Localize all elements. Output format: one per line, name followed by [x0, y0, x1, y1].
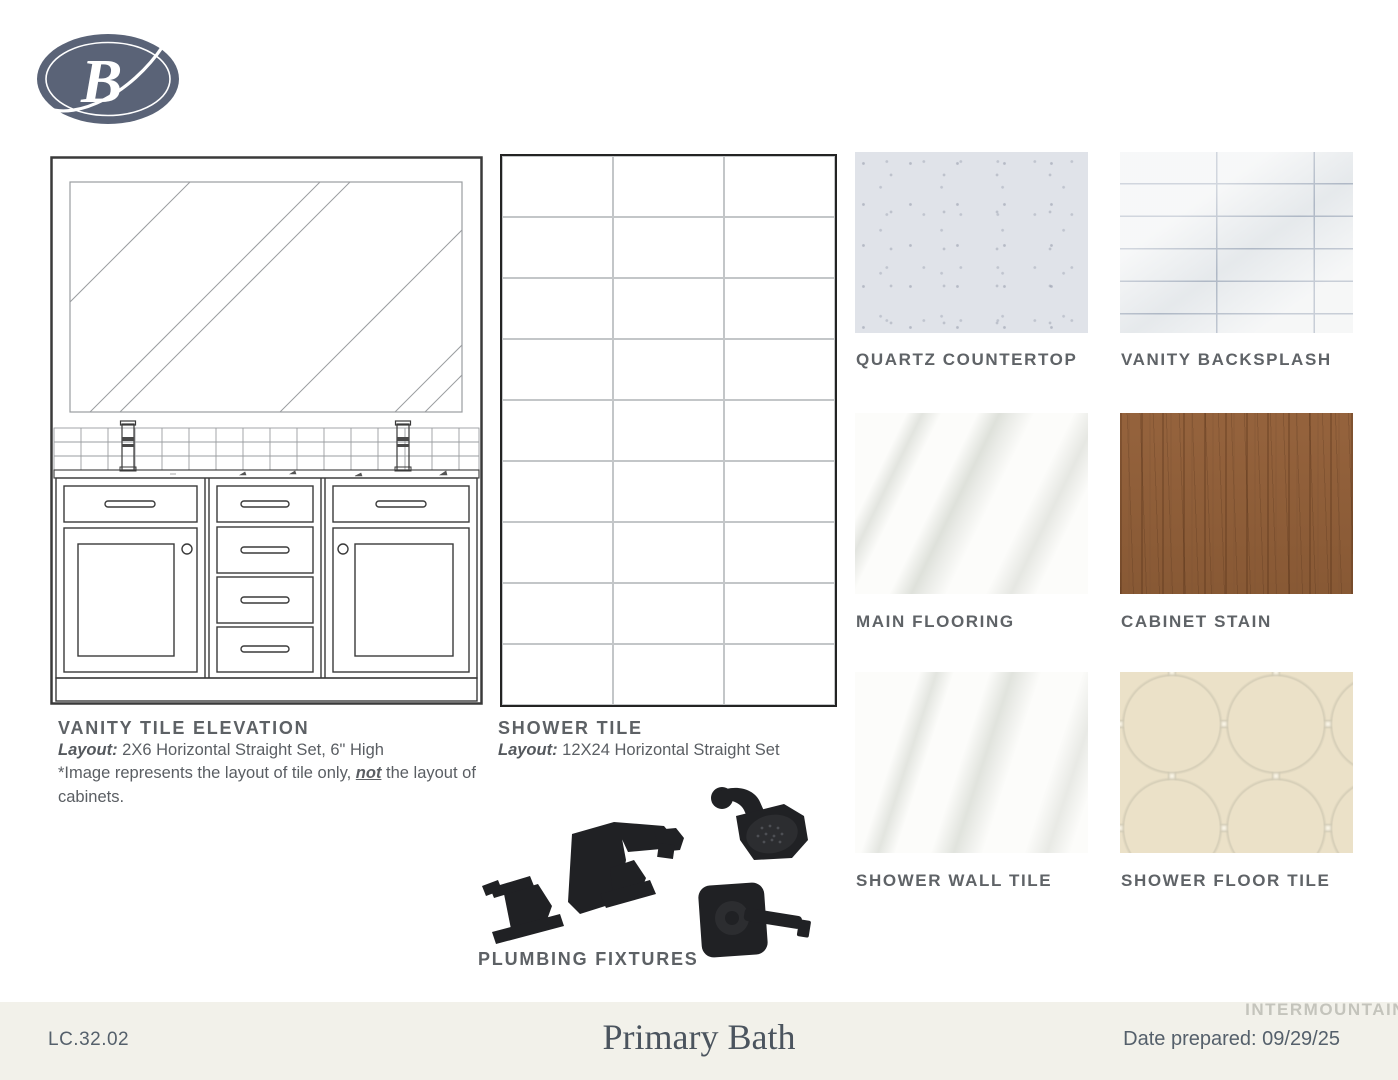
shower-tile-cell — [502, 583, 613, 644]
footer-bar: INTERMOUNTAIN LC.32.02 Primary Bath Date… — [0, 1002, 1398, 1080]
shower-tile-cell — [613, 217, 724, 278]
shower-tile-cell — [502, 217, 613, 278]
brand-logo: B — [35, 32, 181, 126]
shower-tile-cell — [613, 156, 724, 217]
vanity-layout-value: 2X6 Horizontal Straight Set, 6" High — [118, 741, 384, 759]
shower-tile-cell — [724, 156, 835, 217]
label-main-flooring: MAIN FLOORING — [856, 612, 1015, 632]
backsplash-tile-band — [54, 428, 479, 470]
shower-tile-cell — [502, 156, 613, 217]
label-cabinet-stain: CABINET STAIN — [1121, 612, 1272, 632]
swatch-shower-floor-tile — [1120, 672, 1353, 853]
cabinet-right-door — [333, 486, 469, 672]
cabinet-left-door — [64, 486, 197, 672]
plumbing-fixtures-art — [468, 782, 840, 960]
swatch-cabinet-stain — [1120, 413, 1353, 594]
mirror — [50, 162, 483, 412]
shower-tile-cell — [613, 400, 724, 461]
shower-tile-cell — [613, 583, 724, 644]
swatch-quartz-countertop — [855, 152, 1088, 333]
toe-kick — [56, 678, 477, 701]
shower-tile-cell — [502, 278, 613, 339]
shower-tile-cell — [502, 400, 613, 461]
shower-layout-label: Layout: — [498, 741, 558, 759]
countertop — [54, 470, 479, 478]
shower-tile-cell — [724, 339, 835, 400]
date-prepared-value: 09/29/25 — [1257, 1028, 1340, 1050]
vanity-caption: VANITY TILE ELEVATION Layout: 2X6 Horizo… — [58, 718, 478, 809]
vanity-note-bold: not — [356, 764, 382, 782]
shower-valve-icon — [698, 882, 812, 958]
faucet-spout-icon — [568, 822, 684, 914]
shower-caption: SHOWER TILE Layout: 12X24 Horizontal Str… — [498, 718, 848, 762]
shower-tile-cell — [724, 400, 835, 461]
shower-tile-cell — [613, 644, 724, 705]
design-board: B — [0, 0, 1398, 1080]
logo-letter: B — [80, 48, 122, 116]
shower-layout-value: 12X24 Horizontal Straight Set — [558, 741, 780, 759]
label-shower-floor-tile: SHOWER FLOOR TILE — [1121, 871, 1330, 891]
plumbing-fixtures-label: PLUMBING FIXTURES — [478, 949, 699, 970]
shower-tile-grid — [500, 154, 837, 707]
faucet-left — [120, 421, 136, 471]
swatch-shower-wall-tile — [855, 672, 1088, 853]
shower-tile-cell — [502, 461, 613, 522]
swatch-main-flooring — [855, 413, 1088, 594]
shower-tile-cell — [724, 583, 835, 644]
shower-head-icon — [711, 787, 808, 860]
vanity-layout-line: Layout: 2X6 Horizontal Straight Set, 6" … — [58, 739, 478, 762]
shower-tile-cell — [613, 522, 724, 583]
vanity-elevation-drawing — [50, 156, 483, 705]
faucet-right — [395, 421, 411, 471]
date-prepared-label: Date prepared: — [1123, 1028, 1256, 1050]
shower-tile-cell — [724, 278, 835, 339]
shower-title: SHOWER TILE — [498, 718, 848, 739]
shower-tile-cell — [502, 644, 613, 705]
shower-tile-cell — [613, 278, 724, 339]
vanity-note-before: *Image represents the layout of tile onl… — [58, 764, 356, 782]
label-vanity-backsplash: VANITY BACKSPLASH — [1121, 350, 1332, 370]
swatch-vanity-backsplash — [1120, 152, 1353, 333]
date-prepared: Date prepared: 09/29/25 — [1123, 1028, 1340, 1051]
shower-tile-cell — [613, 339, 724, 400]
shower-tile-cell — [724, 644, 835, 705]
cabinet-middle-drawers — [217, 486, 313, 672]
elevation-border — [52, 158, 482, 704]
vanity-cabinets — [56, 478, 477, 701]
shower-tile-cell — [502, 522, 613, 583]
vanity-note: *Image represents the layout of tile onl… — [58, 762, 478, 809]
vanity-title: VANITY TILE ELEVATION — [58, 718, 478, 739]
shower-tile-cell — [724, 461, 835, 522]
shower-tile-cell — [502, 339, 613, 400]
shower-tile-cell — [613, 461, 724, 522]
shower-layout-line: Layout: 12X24 Horizontal Straight Set — [498, 739, 848, 762]
shower-tile-cell — [724, 522, 835, 583]
shower-tile-cell — [724, 217, 835, 278]
label-quartz-countertop: QUARTZ COUNTERTOP — [856, 350, 1077, 370]
faucet-handle-icon — [482, 876, 564, 944]
vanity-layout-label: Layout: — [58, 741, 118, 759]
label-shower-wall-tile: SHOWER WALL TILE — [856, 871, 1052, 891]
